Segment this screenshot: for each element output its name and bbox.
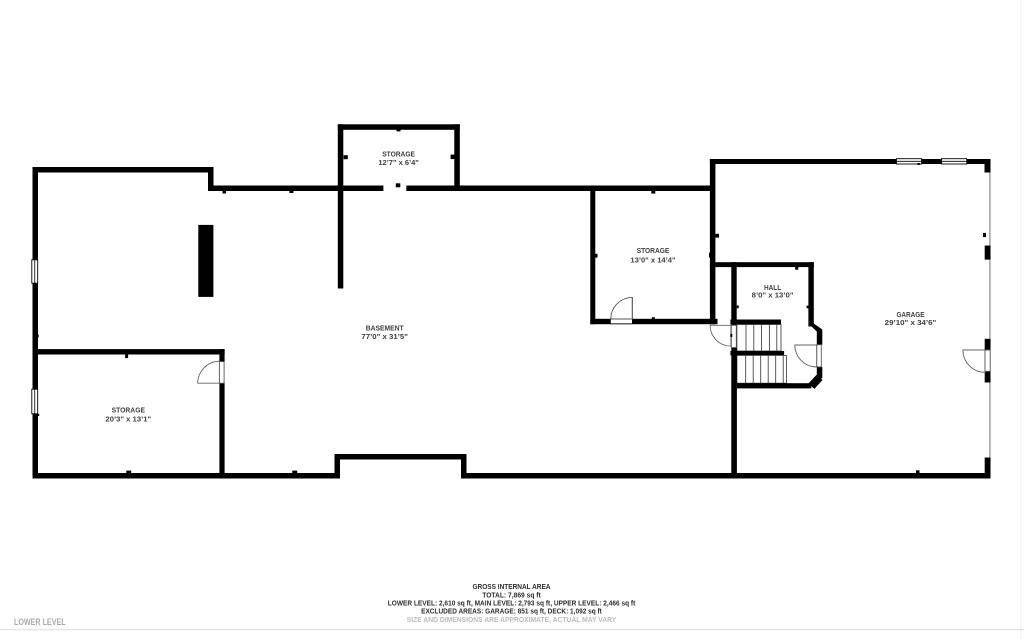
svg-text:12’7" x 6’4": 12’7" x 6’4": [378, 158, 419, 167]
svg-text:8’0" x 13’0": 8’0" x 13’0": [752, 291, 794, 300]
svg-text:STORAGE: STORAGE: [112, 406, 145, 415]
svg-text:20’3" x 13’1": 20’3" x 13’1": [105, 415, 151, 424]
svg-text:29’10" x 34’6": 29’10" x 34’6": [885, 318, 937, 327]
svg-text:LOWER LEVEL: LOWER LEVEL: [14, 617, 66, 627]
svg-text:13’0" x 14’4": 13’0" x 14’4": [630, 255, 676, 264]
svg-text:STORAGE: STORAGE: [637, 246, 670, 255]
svg-text:77’0" x 31’5": 77’0" x 31’5": [361, 332, 408, 341]
svg-text:SIZE AND DIMENSIONS ARE APPROX: SIZE AND DIMENSIONS ARE APPROXIMATE, ACT…: [407, 615, 617, 624]
